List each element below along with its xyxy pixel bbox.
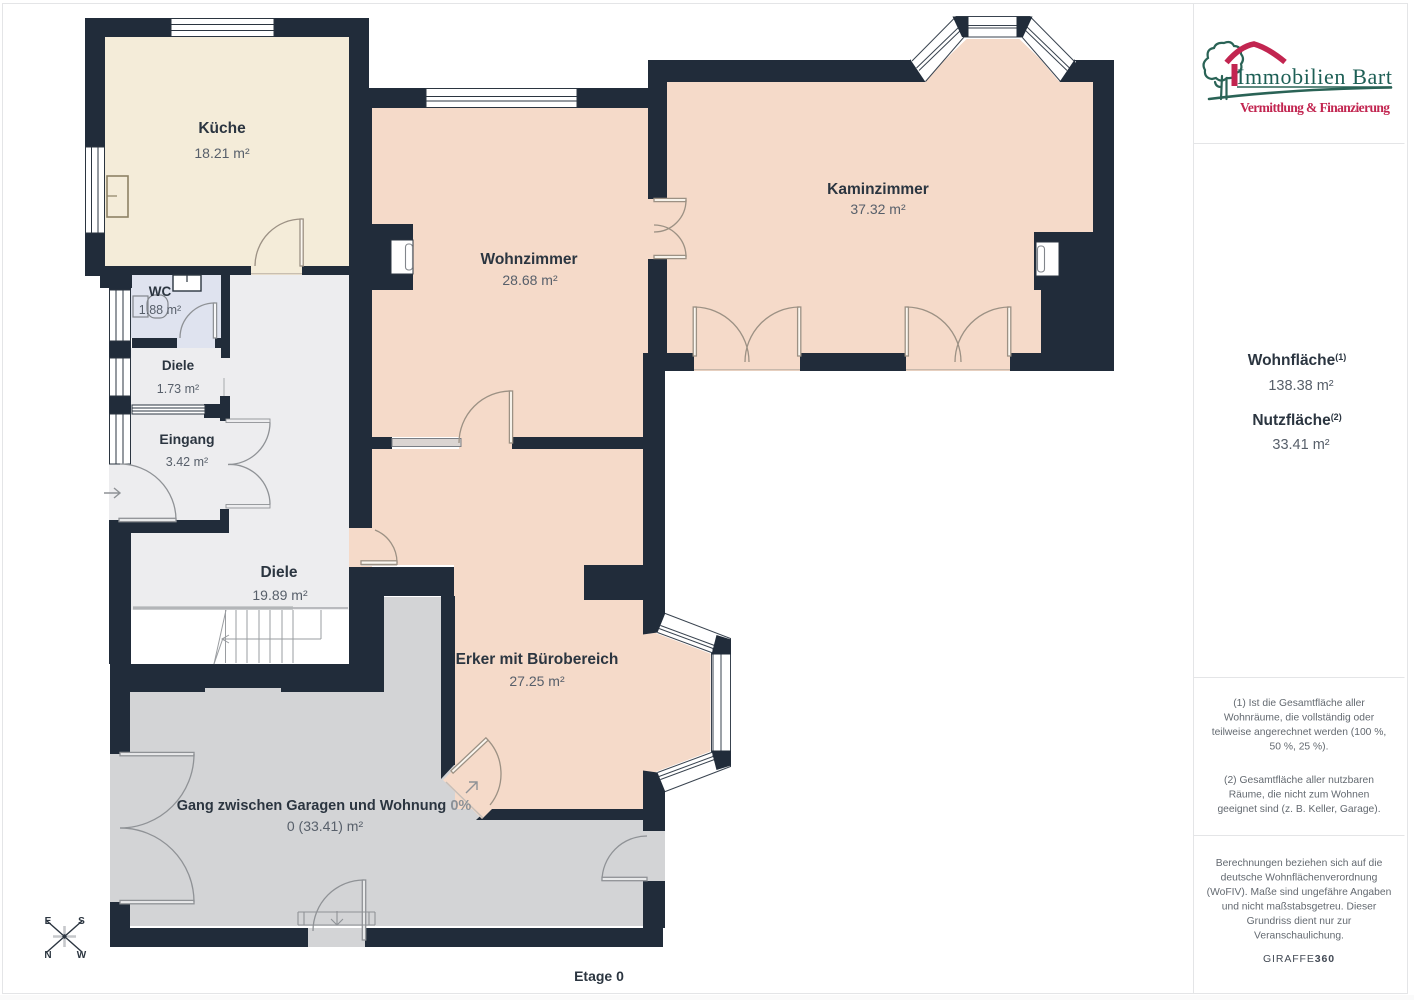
svg-text:geeignet sind (z. B. Keller, G: geeignet sind (z. B. Keller, Garage). [1217,804,1380,815]
svg-text:33.41 m²: 33.41 m² [1272,437,1329,453]
svg-text:und nicht maßstabsgetreu. Dies: und nicht maßstabsgetreu. Dieser [1222,902,1377,913]
svg-text:Immobilien Bart: Immobilien Bart [1237,64,1392,89]
svg-text:GIRAFFE360: GIRAFFE360 [1263,953,1335,965]
svg-text:Vermittlung & Finanzierung: Vermittlung & Finanzierung [1240,100,1390,115]
svg-text:Gang zwischen Garagen und Wohn: Gang zwischen Garagen und Wohnung 0% [177,798,472,814]
svg-text:E: E [45,916,52,927]
svg-text:Grundriss dient nur zur: Grundriss dient nur zur [1247,916,1352,927]
svg-text:(WoFIV). Maße sind ungefähre A: (WoFIV). Maße sind ungefähre Angaben [1207,887,1392,898]
svg-text:Veranschaulichung.: Veranschaulichung. [1254,931,1344,942]
svg-text:Etage 0: Etage 0 [574,968,624,984]
svg-text:S: S [78,916,85,927]
svg-text:Wohnräume, die vollständig ode: Wohnräume, die vollständig oder [1224,713,1375,724]
svg-text:19.89 m²: 19.89 m² [252,587,308,603]
svg-text:Diele: Diele [162,358,195,373]
svg-text:0 (33.41) m²: 0 (33.41) m² [287,818,364,834]
svg-text:Erker mit Bürobereich: Erker mit Bürobereich [456,651,619,668]
svg-text:Diele: Diele [260,564,297,581]
svg-text:(1) Ist die Gesamtfläche aller: (1) Ist die Gesamtfläche aller [1233,698,1365,709]
svg-text:Nutzfläche(2): Nutzfläche(2) [1252,412,1341,429]
svg-text:138.38 m²: 138.38 m² [1268,378,1333,394]
svg-text:1.88 m²: 1.88 m² [139,303,181,317]
svg-text:W: W [77,950,87,961]
svg-text:Kaminzimmer: Kaminzimmer [827,181,929,198]
svg-text:deutsche Wohnflächenverordnung: deutsche Wohnflächenverordnung [1221,873,1378,884]
svg-text:50 %, 25 %).: 50 %, 25 %). [1270,742,1329,753]
svg-text:Berechnungen beziehen sich auf: Berechnungen beziehen sich auf die [1216,858,1383,869]
svg-text:(2) Gesamtfläche aller nutzbar: (2) Gesamtfläche aller nutzbaren [1224,775,1374,786]
svg-text:teilweise angerechnet werden (: teilweise angerechnet werden (100 %, [1212,727,1387,738]
svg-text:WC: WC [149,284,172,299]
svg-text:Wohnfläche(1): Wohnfläche(1) [1248,352,1347,369]
svg-text:18.21 m²: 18.21 m² [194,145,250,161]
svg-text:Wohnzimmer: Wohnzimmer [480,251,577,268]
svg-text:27.25 m²: 27.25 m² [509,673,565,689]
svg-text:N: N [44,950,51,961]
svg-text:Küche: Küche [198,120,246,137]
svg-text:Eingang: Eingang [159,431,214,447]
svg-text:37.32 m²: 37.32 m² [850,201,906,217]
svg-text:3.42 m²: 3.42 m² [166,455,208,469]
svg-text:1.73 m²: 1.73 m² [157,382,199,396]
svg-text:Räume, die nicht zum Wohnen: Räume, die nicht zum Wohnen [1229,790,1370,801]
svg-text:28.68 m²: 28.68 m² [502,272,558,288]
